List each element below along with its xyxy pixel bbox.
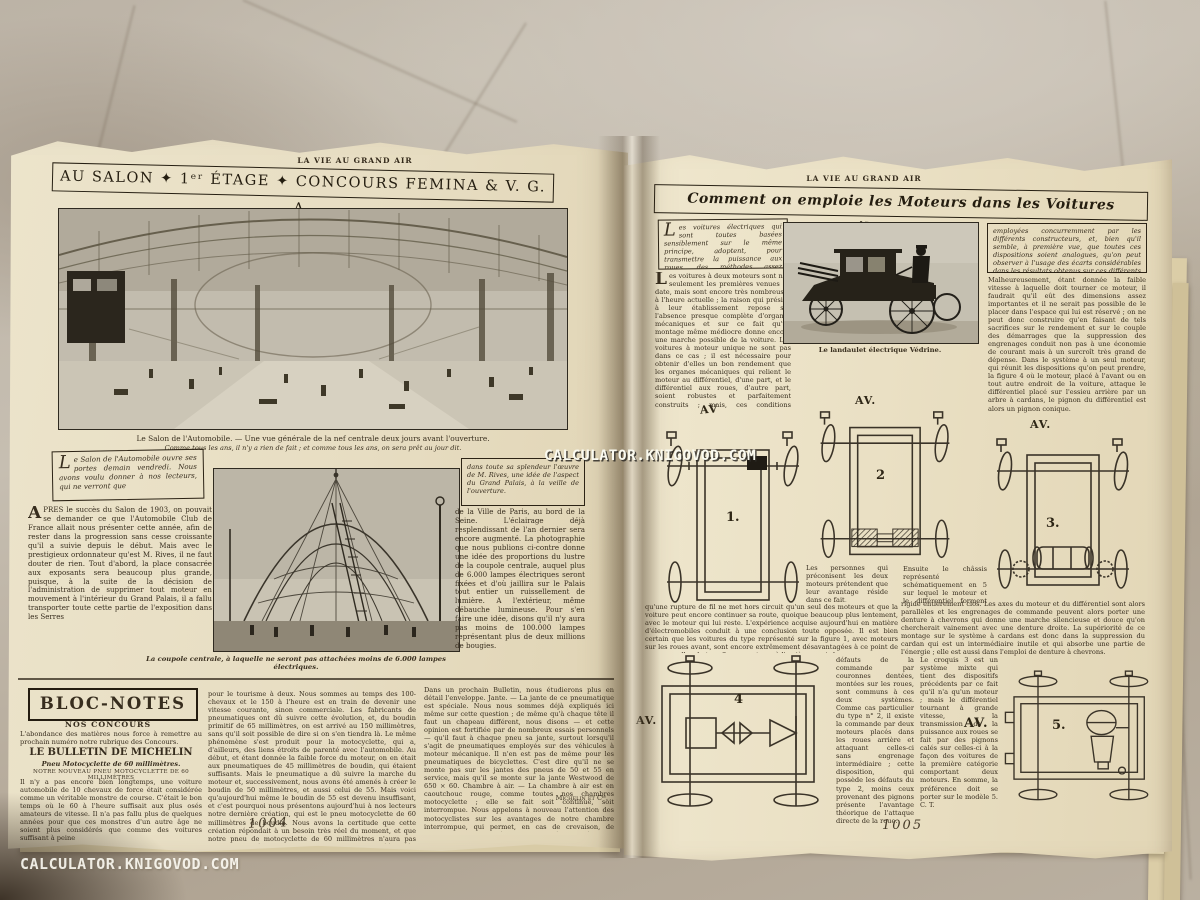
masthead-left: LA VIE AU GRAND AIR <box>270 156 440 165</box>
right-column-1: Les voitures à deux moteurs sont non seu… <box>655 272 791 408</box>
bloc-notes-title: BLOC-NOTES <box>28 688 198 721</box>
segment-left: Les personnes qui préconisent les deux m… <box>806 564 888 602</box>
bottom-column-2: Le croquis 3 est un système mixte qui ti… <box>920 656 998 826</box>
right-column-3: Malheureusement, étant donnée la faible … <box>988 276 1146 432</box>
right-page-number: 1005 <box>882 818 923 833</box>
left-column-3: de la Ville de Paris, au bord de la Sein… <box>455 508 585 660</box>
chassis-diagram-2 <box>812 410 958 570</box>
corner-shadow <box>0 760 300 900</box>
left-page: LA VIE AU GRAND AIR AU SALON ✦ 1ᵉʳ ÉTAGE… <box>8 134 628 856</box>
salon-exposition-photo <box>58 208 568 430</box>
right-page-title: Comment on emploie les Moteurs dans les … <box>654 184 1148 221</box>
car-caption: Le landaulet électrique Védrine. <box>784 346 976 354</box>
left-col3-box: dans toute sa splendeur l'œuvre de M. Ri… <box>461 458 585 506</box>
coupole-photo <box>213 468 460 652</box>
fig3-av-label: AV. <box>1030 418 1051 431</box>
fig5-av-label: AV. <box>964 716 988 731</box>
watermark-bottom-left: CALCULATOR.KNIGOVOD.COM <box>20 855 239 873</box>
landaulet-car-photo <box>783 222 979 344</box>
marble-vein <box>243 0 518 122</box>
nos-concours-heading: NOS CONCOURS <box>38 720 178 729</box>
fig1-av-label: AV <box>700 402 719 416</box>
chassis-diagram-3 <box>988 435 1138 600</box>
chassis-diagram-4 <box>648 654 838 814</box>
segment-right: Ensuite le châssis représenté schématiqu… <box>903 565 987 605</box>
bulletin-michelin-heading: LE BULLETIN DE MICHELIN <box>20 747 202 758</box>
mid-paragraph-left: qu'une rupture de fil ne met hors circui… <box>645 603 898 653</box>
left-intro-box: Le Salon de l'Automobile ouvre ses porte… <box>52 449 205 502</box>
left-page-title: AU SALON ✦ 1ᵉʳ ÉTAGE ✦ CONCOURS FEMINA &… <box>52 162 555 202</box>
right-col3-box: employées concurremment par les différen… <box>987 223 1147 273</box>
fig2-number: 2 <box>876 468 885 483</box>
right-page: LA VIE AU GRAND AIR Comment on emploie l… <box>624 148 1172 862</box>
section-divider <box>18 678 614 680</box>
left-column-1: APRÈS le succès du Salon de 1903, on pou… <box>28 506 212 680</box>
michelin-signature: Michelin et Cⁱᵉ. <box>478 794 608 802</box>
coupole-caption: La coupole centrale, à laquelle ne seron… <box>138 655 454 671</box>
chassis-diagram-5 <box>1002 658 1152 818</box>
watermark-center: CALCULATOR.KNIGOVOD.COM <box>544 448 756 464</box>
salon-photo-caption: Le Salon de l'Automobile. — Une vue géné… <box>68 434 558 443</box>
concours-text: L'abondance des matières nous force à re… <box>20 730 202 746</box>
masthead-right: LA VIE AU GRAND AIR <box>784 174 944 183</box>
photo-of-magazine-spread: LA VIE AU GRAND AIR AU SALON ✦ 1ᵉʳ ÉTAGE… <box>0 0 1200 900</box>
bloc-col3: Dans un prochain Bulletin, nous étudiero… <box>424 686 614 832</box>
fig4-number: 4 <box>734 692 743 707</box>
mid-paragraph-right: rigide entièrement clos. Les axes du mot… <box>901 600 1145 658</box>
fig2-av-label: AV. <box>855 394 876 407</box>
bottom-column-1: défauts de la commande par couronnes den… <box>836 656 914 824</box>
fig1-number: 1. <box>726 510 740 525</box>
fig3-number: 3. <box>1046 516 1060 531</box>
right-intro-box: Les voitures électriques qui sont toutes… <box>658 218 789 269</box>
